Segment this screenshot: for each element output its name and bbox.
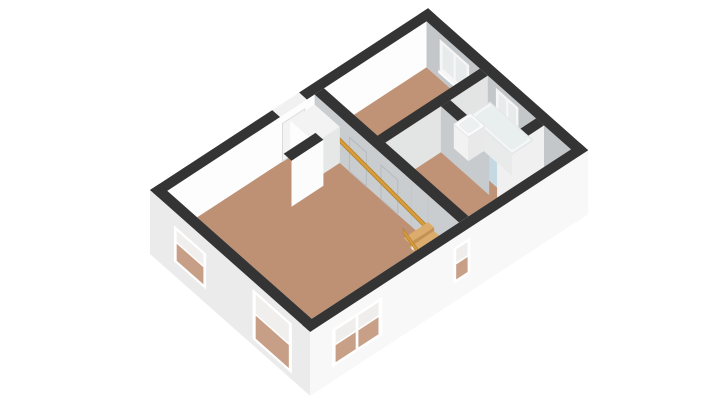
floorplan-3d-rendering <box>0 0 720 405</box>
vanity-basin <box>462 119 478 131</box>
bedroom-window-mullion <box>454 54 456 80</box>
stair-wall-seam-1 <box>411 182 412 227</box>
floorplan-3d-canvas[interactable] <box>0 0 720 405</box>
